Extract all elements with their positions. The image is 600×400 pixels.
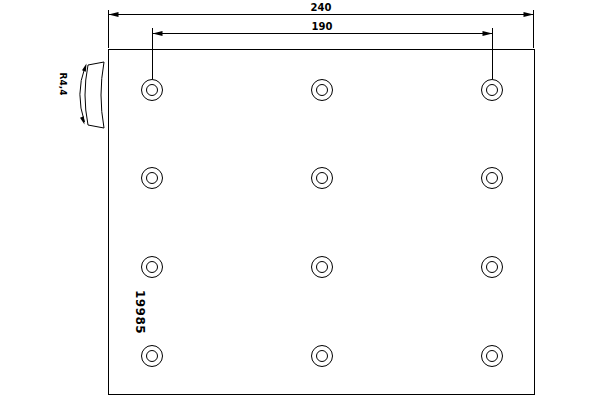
dimension-hole-spacing	[153, 28, 493, 79]
rivet-hole	[487, 173, 498, 184]
rivet-hole	[147, 85, 158, 96]
technical-drawing: 240 190 19985 R4,4	[0, 0, 600, 400]
rivet-hole	[487, 351, 498, 362]
camber-value-label: R4,4	[58, 73, 67, 96]
rivet-hole	[147, 351, 158, 362]
rivet-hole	[487, 262, 498, 273]
drawing-lines-layer	[0, 0, 600, 400]
arc-arrowhead-bottom	[80, 116, 85, 124]
rivet-hole	[487, 85, 498, 96]
rivet-hole	[317, 173, 328, 184]
rivet-hole	[147, 262, 158, 273]
camber-symbol-icon	[80, 62, 104, 128]
dimension-label-hole-spacing: 190	[307, 22, 337, 32]
camber-dimension-arc	[80, 67, 85, 122]
arrowhead-left	[153, 31, 163, 36]
rivet-hole	[147, 173, 158, 184]
dimension-label-overall-width: 240	[306, 3, 336, 13]
rivet-hole	[317, 351, 328, 362]
rivet-hole-grid	[142, 80, 503, 367]
rivet-hole	[317, 262, 328, 273]
arrowhead-right	[524, 12, 534, 17]
lining-plate-outline	[109, 50, 535, 395]
part-number-label: 19985	[134, 290, 146, 334]
curved-lining-section	[85, 62, 104, 128]
arc-arrowhead-top	[82, 64, 87, 72]
rivet-hole	[317, 85, 328, 96]
arrowhead-left	[109, 12, 119, 17]
arrowhead-right	[483, 31, 493, 36]
